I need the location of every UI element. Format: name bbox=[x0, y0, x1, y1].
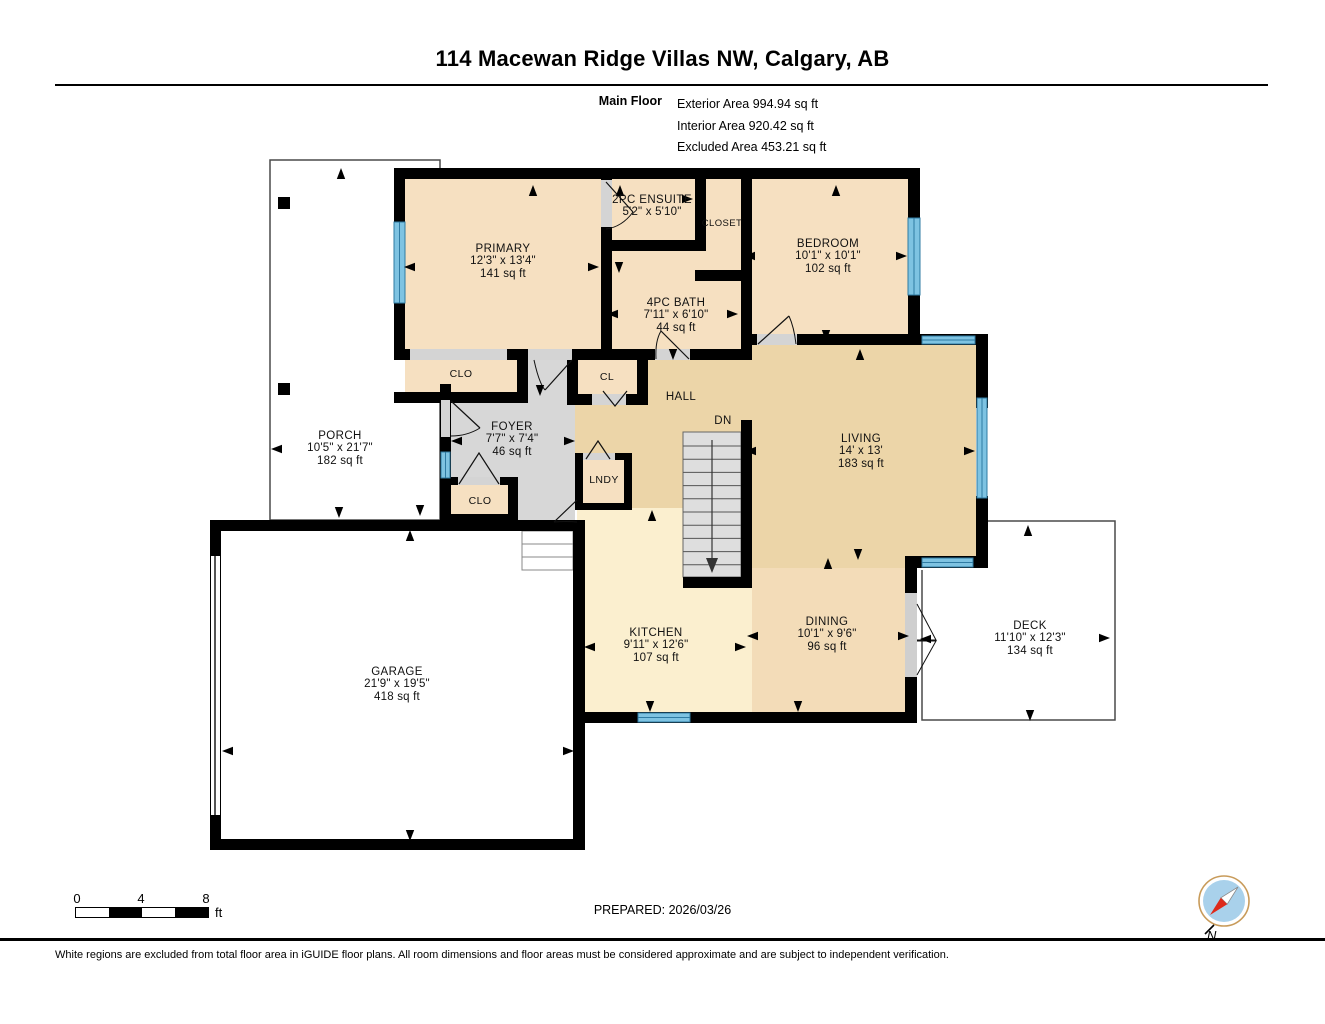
room-label-bedroom: BEDROOM 10'1" x 10'1" 102 sq ft bbox=[795, 238, 861, 275]
room-label-living: LIVING 14' x 13' 183 sq ft bbox=[838, 433, 884, 470]
footer-divider bbox=[0, 938, 1325, 941]
disclaimer-text: White regions are excluded from total fl… bbox=[55, 949, 1285, 961]
room-label-dining: DINING 10'1" x 9'6" 96 sq ft bbox=[797, 616, 856, 653]
room-label-cl: CL bbox=[600, 371, 614, 383]
prepared-date: PREPARED: 2026/03/26 bbox=[0, 903, 1325, 917]
room-label-primary: PRIMARY 12'3" x 13'4" 141 sq ft bbox=[470, 243, 536, 280]
room-label-clo-primary: CLO bbox=[450, 368, 473, 380]
room-label-kitchen: KITCHEN 9'11" x 12'6" 107 sq ft bbox=[624, 627, 689, 664]
room-label-dn: DN bbox=[714, 415, 731, 427]
floor-plan-canvas bbox=[0, 0, 1325, 1024]
room-label-hall: HALL bbox=[666, 391, 696, 403]
room-label-bath: 4PC BATH 7'11" x 6'10" 44 sq ft bbox=[644, 297, 709, 334]
room-label-foyer: FOYER 7'7" x 7'4" 46 sq ft bbox=[486, 421, 538, 458]
room-label-porch: PORCH 10'5" x 21'7" 182 sq ft bbox=[307, 430, 373, 467]
compass-icon: N bbox=[1194, 872, 1258, 942]
room-label-clo-foyer: CLO bbox=[469, 495, 492, 507]
floor-plan-page: 114 Macewan Ridge Villas NW, Calgary, AB… bbox=[0, 0, 1325, 1024]
room-label-lndy: LNDY bbox=[589, 474, 619, 486]
room-label-garage: GARAGE 21'9" x 19'5" 418 sq ft bbox=[364, 666, 430, 703]
room-label-deck: DECK 11'10" x 12'3" 134 sq ft bbox=[994, 620, 1065, 657]
room-label-closet: CLOSET bbox=[702, 218, 742, 230]
room-label-ensuite: 2PC ENSUITE 5'2" x 5'10" bbox=[612, 194, 692, 219]
